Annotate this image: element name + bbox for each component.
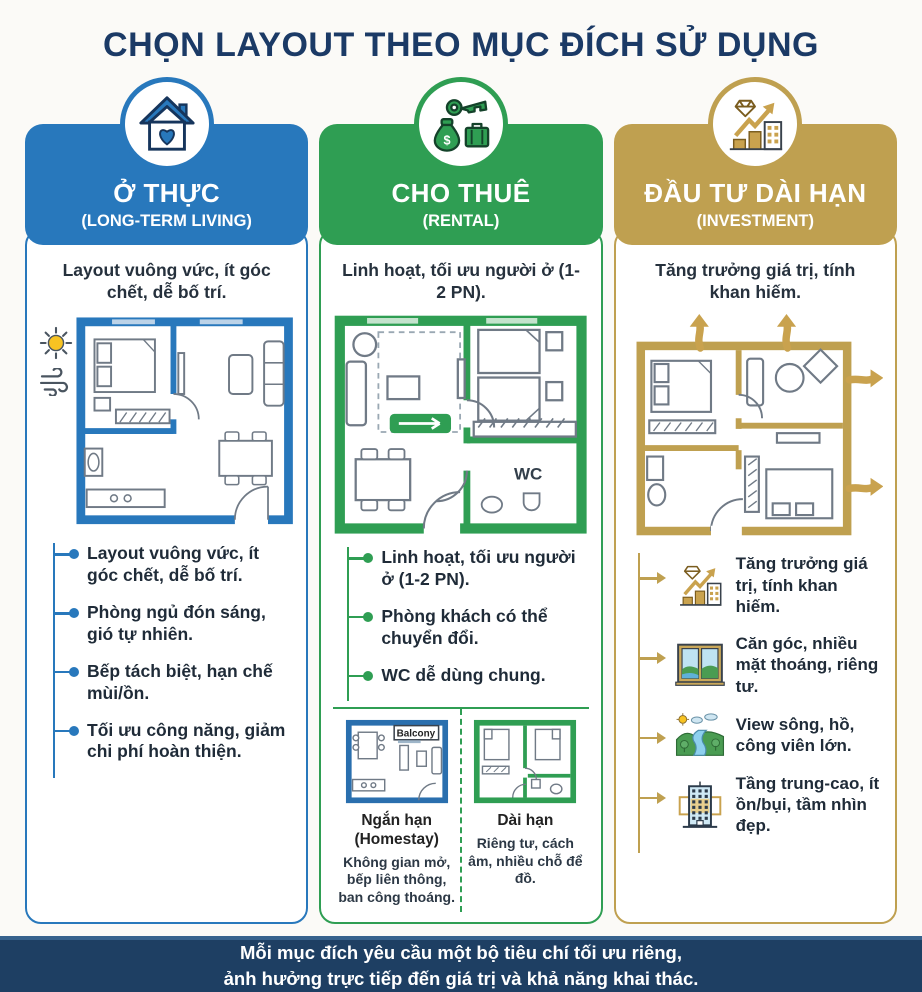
- growth-chart-icon: [674, 562, 726, 608]
- wc-label: WC: [514, 464, 542, 483]
- list-item: Layout vuông vức, ít góc chết, dễ bố trí…: [55, 543, 290, 587]
- list-item: Tối ưu công năng, giảm chi phí hoàn thiệ…: [55, 720, 290, 764]
- feature-text: Tầng trung-cao, ít ồn/bụi, tầm nhìn đẹp.: [736, 773, 883, 837]
- mini-desc: Không gian mở, bếp liên thông, ban công …: [338, 854, 455, 907]
- wind-icon: [39, 368, 73, 396]
- corner-window-icon: [674, 643, 726, 687]
- mini-homestay: Balcony Ngắn hạn (Homestay) Không gian m…: [333, 709, 460, 912]
- investment-growth-icon: [708, 77, 802, 171]
- living-bullet-list: Layout vuông vức, ít góc chết, dễ bố trí…: [53, 543, 290, 778]
- card-long-term-living: Ở THỰC (LONG-TERM LIVING) Layout vuông v…: [25, 77, 308, 924]
- list-item: View sông, hồ, công viên lớn.: [640, 713, 883, 757]
- body-rental: Linh hoạt, tối ưu người ở (1-2 PN).: [319, 229, 602, 924]
- footer-line-1: Mỗi mục đích yêu cầu một bộ tiêu chí tối…: [0, 940, 922, 966]
- list-item: Tầng trung-cao, ít ồn/bụi, tầm nhìn đẹp.: [640, 773, 883, 837]
- blue-floorplan: [75, 316, 294, 526]
- feature-text: View sông, hồ, công viên lớn.: [736, 714, 883, 757]
- gold-floorplan: [628, 314, 883, 540]
- list-item: Căn góc, nhiều mặt thoáng, riêng tư.: [640, 633, 883, 697]
- mini-long-term: Dài hạn Riêng tư, cách âm, nhiều chỗ để …: [460, 709, 589, 912]
- title-row: CHỌN LAYOUT THEO MỤC ĐÍCH SỬ DỤNG: [0, 0, 922, 73]
- list-item: Tăng trưởng giá trị, tính khan hiếm.: [640, 553, 883, 617]
- list-item: WC dễ dùng chung.: [349, 665, 584, 687]
- column-title: CHO THUÊ: [327, 178, 594, 209]
- feature-text: Căn góc, nhiều mặt thoáng, riêng tư.: [736, 633, 883, 697]
- homestay-mini-floorplan: Balcony: [345, 719, 449, 806]
- longterm-mini-floorplan: [473, 719, 577, 806]
- cards-row: Ở THỰC (LONG-TERM LIVING) Layout vuông v…: [0, 73, 922, 936]
- list-item: Phòng khách có thể chuyển đổi.: [349, 606, 584, 650]
- column-subtitle: (INVESTMENT): [622, 212, 889, 231]
- investment-feature-list: Tăng trưởng giá trị, tính khan hiếm.: [638, 553, 883, 852]
- mini-title-2: (Homestay): [338, 831, 455, 850]
- card-rental: $ CHO THUÊ (RENTAL) Linh hoạt, tối ưu ng…: [319, 77, 602, 924]
- footer-banner: Mỗi mục đích yêu cầu một bộ tiêu chí tối…: [0, 936, 922, 992]
- feature-text: Tăng trưởng giá trị, tính khan hiếm.: [736, 553, 883, 617]
- river-park-view-icon: [674, 713, 726, 757]
- mid-high-floor-icon: [674, 780, 726, 830]
- column-subtitle: (LONG-TERM LIVING): [33, 212, 300, 231]
- list-item: Phòng ngủ đón sáng, gió tự nhiên.: [55, 602, 290, 646]
- green-floorplan: WC: [333, 314, 588, 535]
- column-title: ĐẦU TƯ DÀI HẠN: [622, 178, 889, 209]
- column-subtitle: (RENTAL): [327, 212, 594, 231]
- footer-line-2: ảnh hưởng trực tiếp đến giá trị và khả n…: [0, 966, 922, 992]
- mini-desc: Riêng tư, cách âm, nhiều chỗ để đồ.: [467, 835, 584, 888]
- house-heart-icon: [120, 77, 214, 171]
- mini-title: Ngắn hạn: [338, 812, 455, 831]
- rental-mini-plans: Balcony Ngắn hạn (Homestay) Không gian m…: [333, 707, 588, 912]
- body-long-term-living: Layout vuông vức, ít góc chết, dễ bố trí…: [25, 229, 308, 924]
- body-investment: Tăng trưởng giá trị, tính khan hiếm.: [614, 229, 897, 924]
- list-item: Bếp tách biệt, hạn chế mùi/ồn.: [55, 661, 290, 705]
- column-summary: Layout vuông vức, ít góc chết, dễ bố trí…: [45, 259, 288, 304]
- column-title: Ở THỰC: [33, 178, 300, 209]
- rental-bullet-list: Linh hoạt, tối ưu người ở (1-2 PN). Phòn…: [347, 547, 584, 701]
- column-summary: Linh hoạt, tối ưu người ở (1-2 PN).: [339, 259, 582, 304]
- column-summary: Tăng trưởng giá trị, tính khan hiếm.: [634, 259, 877, 304]
- list-item: Linh hoạt, tối ưu người ở (1-2 PN).: [349, 547, 584, 591]
- card-investment: ĐẦU TƯ DÀI HẠN (INVESTMENT) Tăng trưởng …: [614, 77, 897, 924]
- svg-text:$: $: [443, 133, 450, 147]
- balcony-label: Balcony: [396, 729, 435, 740]
- living-plan-section: [39, 316, 294, 526]
- mini-title: Dài hạn: [467, 812, 584, 831]
- sun-icon: [39, 326, 73, 360]
- key-money-icon: $: [414, 77, 508, 171]
- page-title: CHỌN LAYOUT THEO MỤC ĐÍCH SỬ DỤNG: [10, 26, 912, 65]
